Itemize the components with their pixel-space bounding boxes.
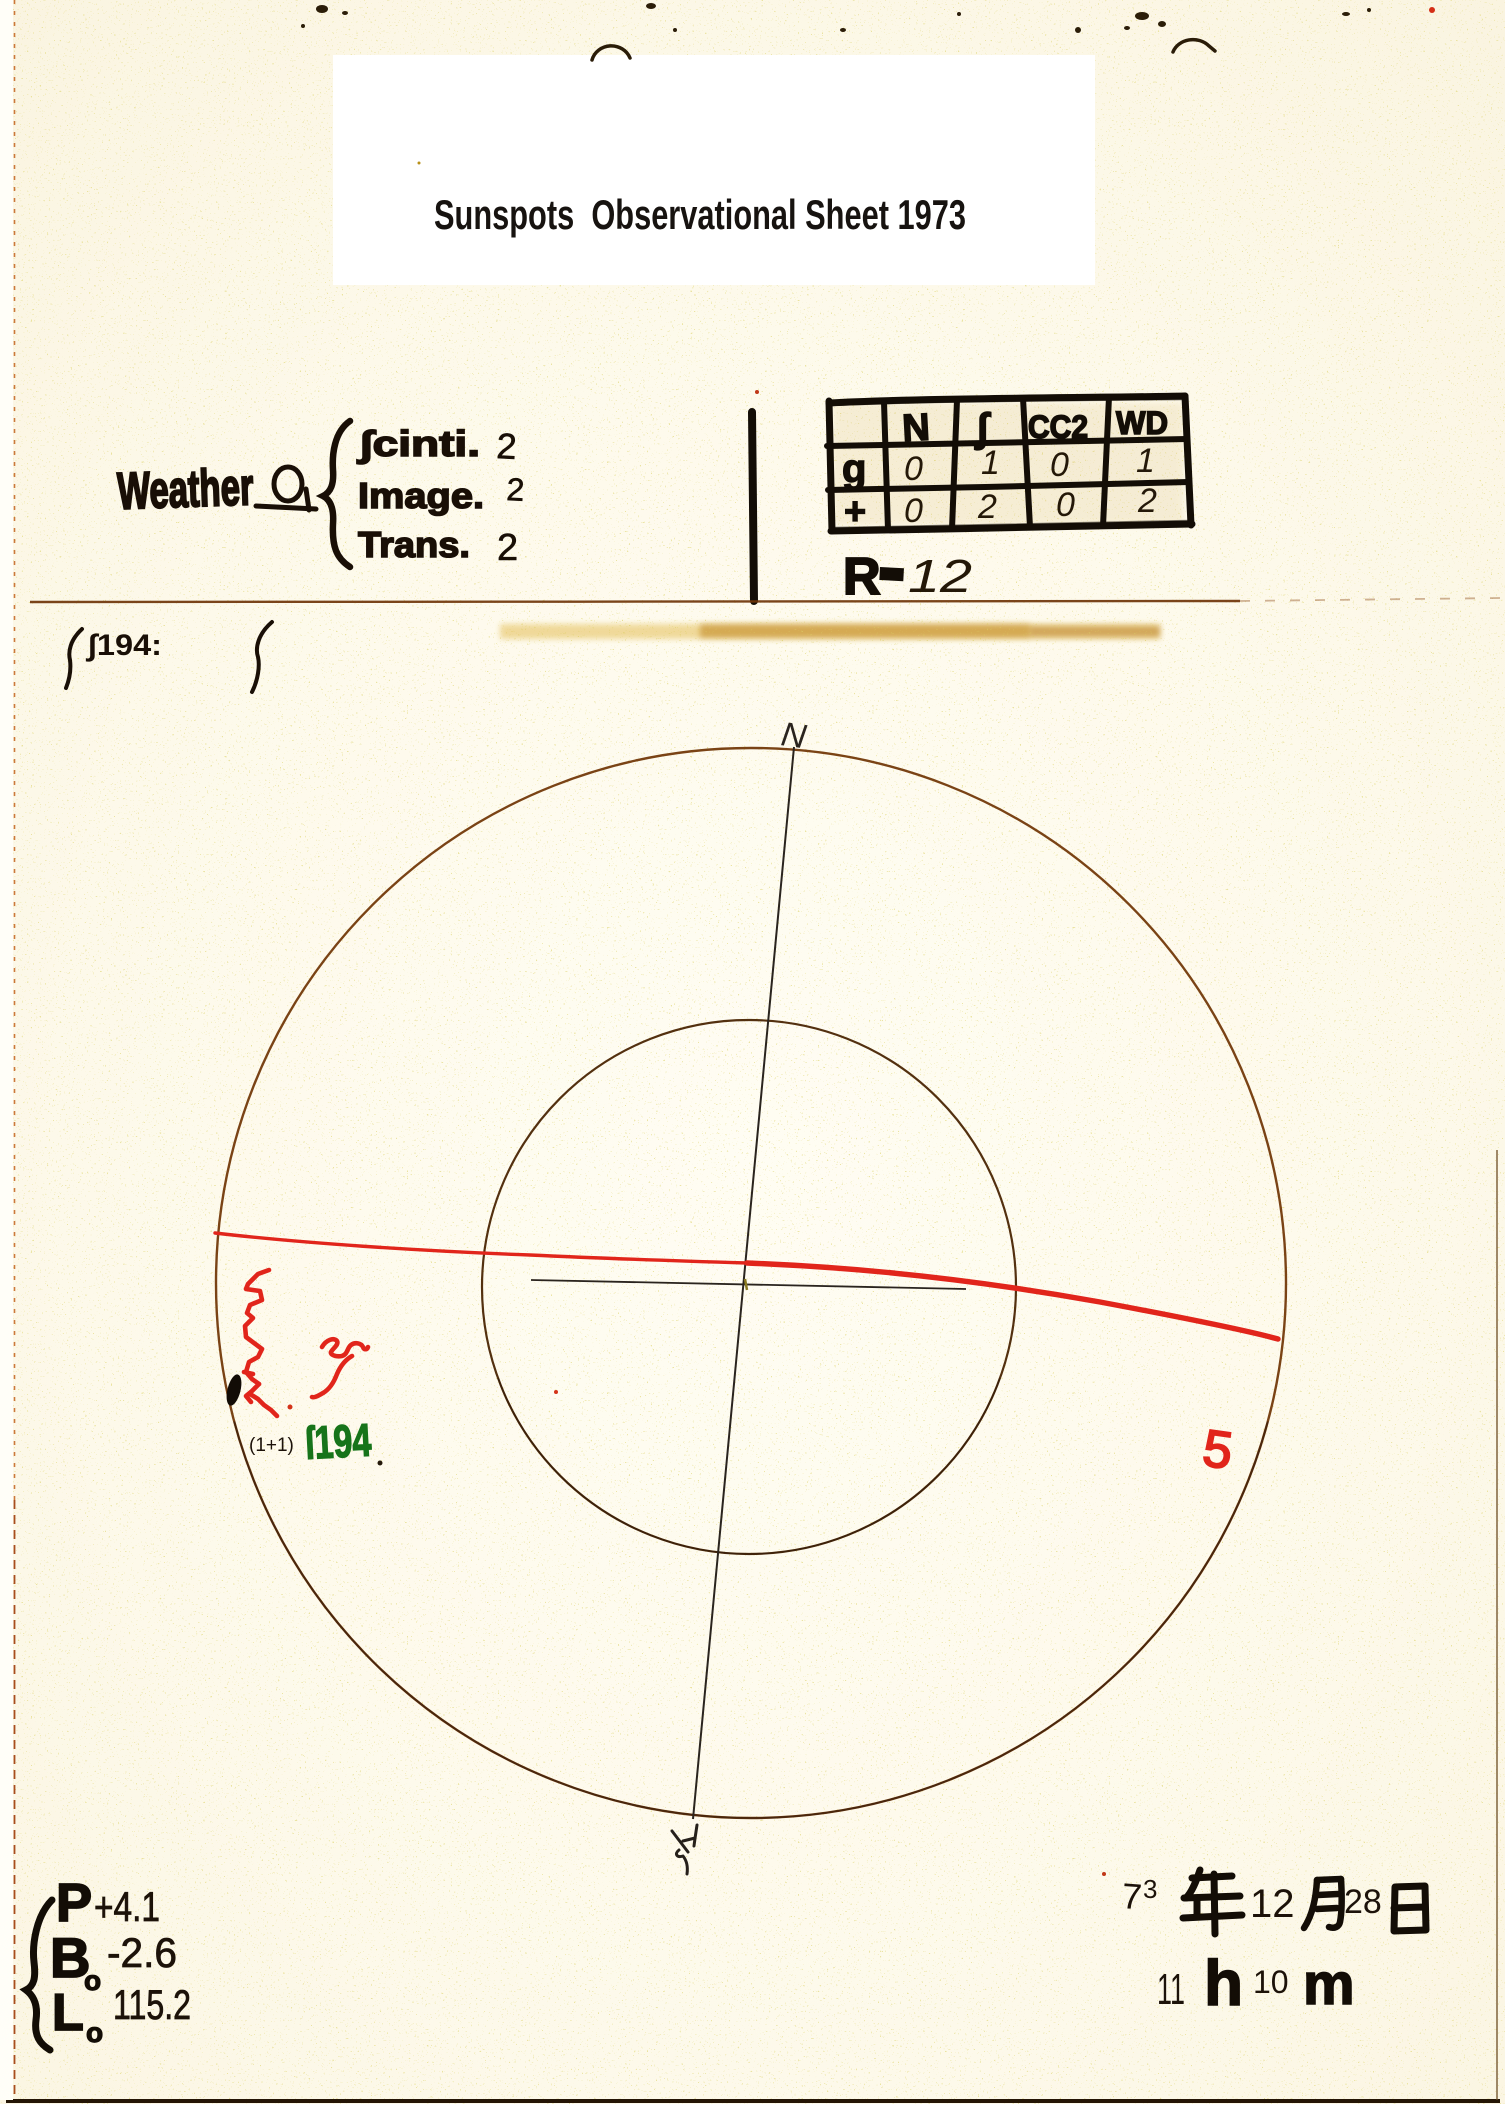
svg-text:1: 1	[981, 444, 1000, 482]
svg-text:CC2: CC2	[1028, 409, 1088, 445]
svg-text:o: o	[84, 1965, 101, 1996]
svg-text:12: 12	[1250, 1882, 1295, 1926]
svg-text:28: 28	[1344, 1883, 1382, 1921]
svg-text:h: h	[1204, 1947, 1243, 2019]
svg-text:+4.1: +4.1	[94, 1883, 160, 1930]
svg-text:2: 2	[497, 527, 518, 569]
svg-text:o: o	[86, 2017, 103, 2048]
svg-text:(1+1): (1+1)	[249, 1435, 294, 1456]
svg-text:Sunspots Observational Sheet: Sunspots Observational Sheet 1973	[434, 191, 966, 238]
svg-text:-2.6: -2.6	[107, 1929, 177, 1976]
svg-text:R: R	[843, 548, 881, 606]
svg-text:7: 7	[1120, 1875, 1143, 1917]
svg-text:2: 2	[977, 488, 997, 526]
svg-text:N: N	[901, 407, 931, 450]
svg-text:3: 3	[1143, 1874, 1157, 1904]
svg-text:2: 2	[1137, 482, 1157, 520]
svg-text:∫cinti.: ∫cinti.	[356, 423, 480, 464]
svg-text:WD: WD	[1116, 405, 1168, 441]
svg-text:P: P	[56, 1873, 92, 1933]
svg-text:2: 2	[506, 471, 526, 508]
svg-text:10: 10	[1253, 1964, 1289, 2000]
svg-text:Weather: Weather	[116, 458, 254, 521]
svg-text:ſ194: ſ194	[304, 1414, 373, 1469]
svg-text:0: 0	[904, 492, 923, 530]
svg-text:g: g	[842, 447, 866, 491]
svg-text:0: 0	[1050, 446, 1069, 484]
svg-text:Trans.: Trans.	[358, 524, 470, 565]
svg-text:L: L	[52, 1984, 84, 2042]
svg-text:0: 0	[1056, 486, 1075, 524]
svg-text:0: 0	[904, 450, 923, 488]
svg-text:+: +	[844, 491, 866, 533]
svg-text:1: 1	[1136, 442, 1155, 480]
svg-text:Image.: Image.	[358, 475, 484, 516]
svg-text:115.2: 115.2	[113, 1981, 191, 2028]
svg-text:12: 12	[908, 550, 972, 602]
svg-text:∫194:: ∫194:	[86, 629, 162, 662]
svg-text:11: 11	[1157, 1965, 1185, 2014]
svg-text:2: 2	[496, 425, 518, 467]
svg-text:m: m	[1303, 1952, 1355, 2017]
